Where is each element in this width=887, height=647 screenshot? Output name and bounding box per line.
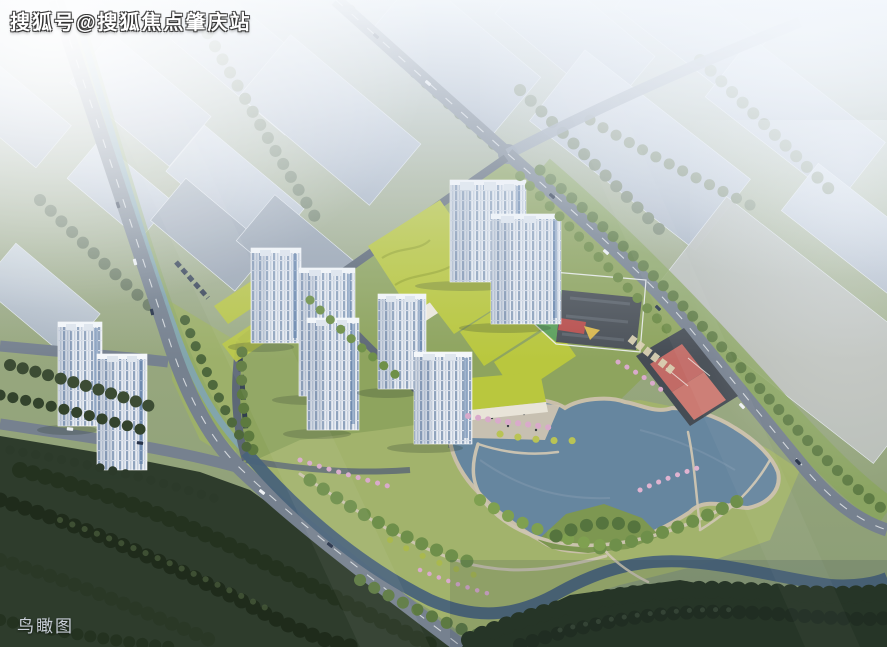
rendering-canvas — [0, 0, 887, 647]
aerial-rendering: 搜狐号@搜狐焦点肇庆站 鸟瞰图 — [0, 0, 887, 647]
view-caption: 鸟瞰图 — [17, 612, 74, 637]
watermark: 搜狐号@搜狐焦点肇庆站 — [10, 6, 252, 35]
